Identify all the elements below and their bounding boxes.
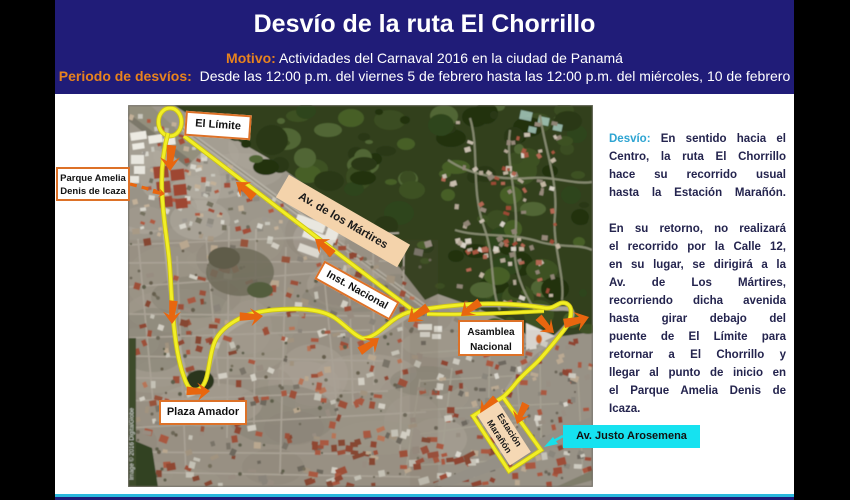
- svg-text:Image © 2016 DigitalGlobe: Image © 2016 DigitalGlobe: [129, 407, 136, 480]
